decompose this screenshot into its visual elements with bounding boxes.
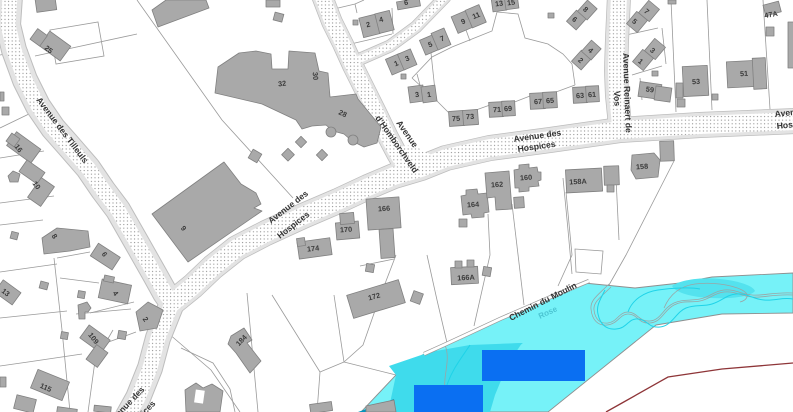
svg-text:170: 170 bbox=[340, 225, 353, 235]
svg-text:71: 71 bbox=[493, 105, 502, 114]
svg-text:158A: 158A bbox=[569, 177, 588, 187]
svg-text:160: 160 bbox=[520, 173, 533, 183]
svg-text:164: 164 bbox=[467, 200, 481, 210]
svg-text:13: 13 bbox=[494, 0, 503, 9]
svg-text:166: 166 bbox=[378, 204, 391, 214]
svg-text:73: 73 bbox=[466, 112, 475, 122]
svg-text:162: 162 bbox=[491, 180, 504, 190]
svg-text:67: 67 bbox=[534, 97, 543, 106]
svg-text:15: 15 bbox=[506, 0, 515, 8]
svg-text:69: 69 bbox=[504, 104, 513, 113]
svg-text:158: 158 bbox=[636, 162, 649, 172]
svg-text:65: 65 bbox=[546, 96, 555, 105]
svg-text:63: 63 bbox=[576, 91, 585, 100]
svg-text:Vos: Vos bbox=[612, 91, 623, 107]
svg-text:61: 61 bbox=[588, 90, 597, 99]
svg-text:59: 59 bbox=[645, 84, 654, 94]
svg-text:174: 174 bbox=[307, 243, 321, 253]
svg-text:32: 32 bbox=[277, 79, 286, 89]
svg-text:53: 53 bbox=[692, 77, 701, 86]
svg-text:30: 30 bbox=[311, 72, 321, 81]
svg-text:51: 51 bbox=[740, 69, 749, 78]
svg-text:75: 75 bbox=[452, 114, 461, 124]
svg-text:166A: 166A bbox=[457, 273, 476, 283]
